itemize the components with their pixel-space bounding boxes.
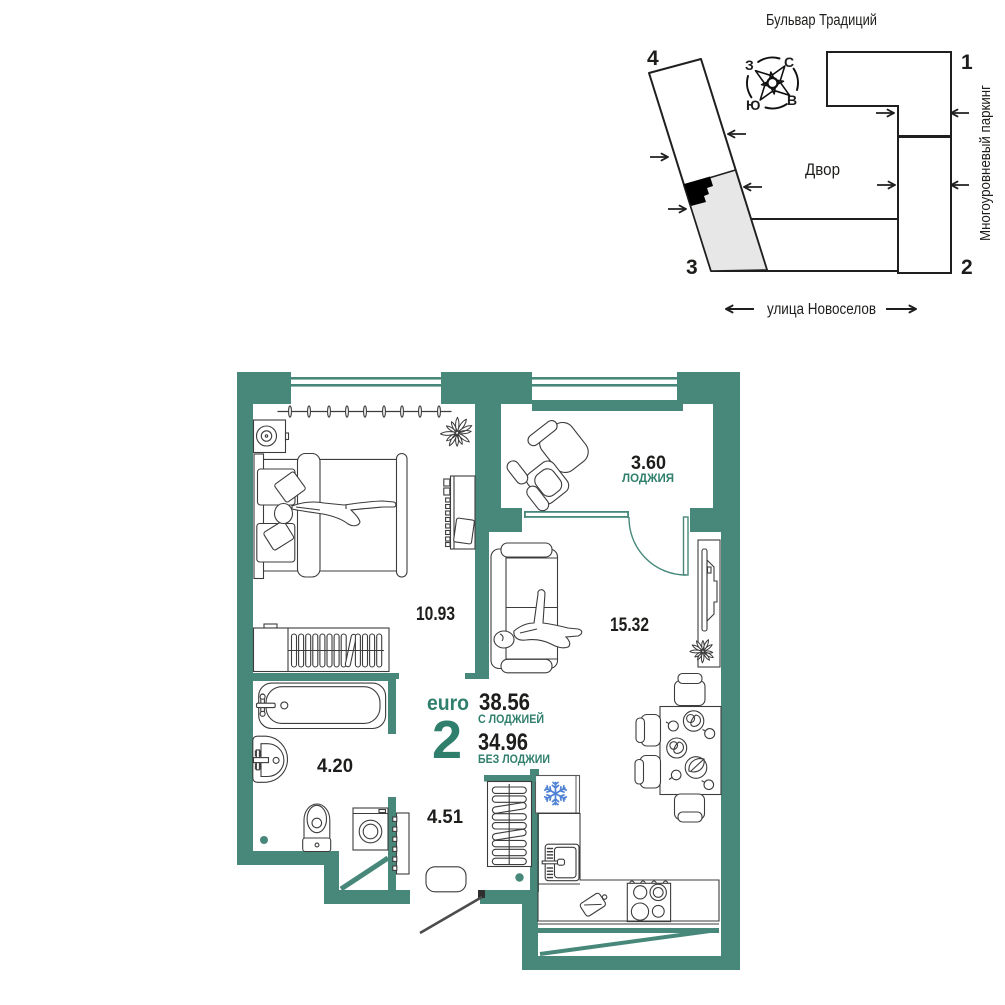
svg-text:3.60: 3.60	[631, 452, 666, 474]
svg-text:Ю: Ю	[746, 97, 760, 113]
svg-text:улица Новоселов: улица Новоселов	[767, 301, 876, 318]
svg-text:Многоуровневый паркинг: Многоуровневый паркинг	[977, 85, 994, 241]
svg-text:В: В	[787, 92, 797, 108]
svg-text:Двор: Двор	[805, 160, 840, 179]
svg-text:4.20: 4.20	[317, 755, 353, 777]
svg-text:1: 1	[961, 51, 973, 74]
svg-text:БЕЗ ЛОДЖИИ: БЕЗ ЛОДЖИИ	[478, 752, 550, 766]
svg-text:4.51: 4.51	[427, 806, 463, 828]
svg-text:З: З	[745, 57, 754, 73]
svg-text:2: 2	[432, 710, 462, 770]
svg-text:С ЛОДЖИЕЙ: С ЛОДЖИЕЙ	[478, 711, 544, 726]
svg-text:Бульвар Традиций: Бульвар Традиций	[766, 12, 877, 29]
svg-text:2: 2	[961, 256, 973, 279]
svg-text:3: 3	[686, 256, 698, 279]
svg-text:4: 4	[647, 47, 659, 70]
svg-text:ЛОДЖИЯ: ЛОДЖИЯ	[622, 473, 674, 485]
svg-text:10.93: 10.93	[416, 603, 455, 625]
svg-text:15.32: 15.32	[610, 614, 649, 636]
svg-text:С: С	[784, 54, 794, 70]
